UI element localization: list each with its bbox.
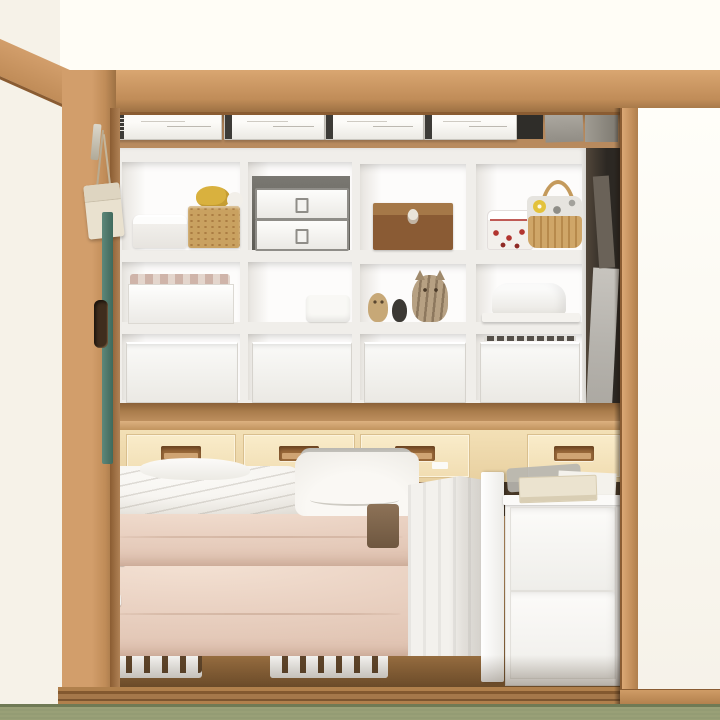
closet-photo	[0, 0, 720, 720]
drawer-handle	[554, 446, 594, 461]
cat-figurine	[412, 275, 448, 322]
white-board	[482, 313, 580, 322]
door-left-stile	[620, 108, 640, 712]
wooden-keepsake-box	[373, 203, 453, 250]
fabric-cover	[408, 476, 482, 656]
cream-notebook	[519, 475, 598, 504]
white-pillow	[295, 452, 419, 516]
owl-figurine	[368, 293, 388, 322]
metal-latch-box-1	[255, 188, 349, 220]
cloth-flower	[533, 200, 546, 213]
wicker-basket	[528, 216, 582, 248]
wall-upper	[60, 0, 720, 74]
storage-bin-4	[480, 342, 580, 403]
pillar-recessed-handle	[94, 300, 108, 348]
tatami-floor	[0, 704, 720, 720]
bin4-dark-edge	[484, 336, 576, 341]
counter-top	[95, 403, 622, 421]
duck-toy	[196, 186, 230, 208]
metal-latch-box-2	[255, 219, 349, 251]
storage-bin-2	[252, 342, 352, 403]
white-lidded-container	[133, 215, 187, 248]
white-tray-box	[128, 284, 234, 324]
black-figurine	[392, 299, 407, 322]
storage-bin-1	[126, 342, 238, 403]
storage-bin-3	[364, 342, 466, 403]
brown-pouch	[367, 504, 399, 548]
pink-futon-lower	[97, 560, 417, 656]
counter-edge	[95, 421, 622, 430]
small-white-box	[306, 295, 350, 322]
unit-drawer-top	[510, 507, 616, 591]
duvet-fold	[140, 458, 250, 480]
cork-basket	[188, 206, 240, 248]
appliance-cover	[492, 283, 566, 314]
door-panel	[638, 108, 720, 694]
divider-panel	[481, 472, 504, 682]
drawer-label-tag	[432, 462, 448, 469]
